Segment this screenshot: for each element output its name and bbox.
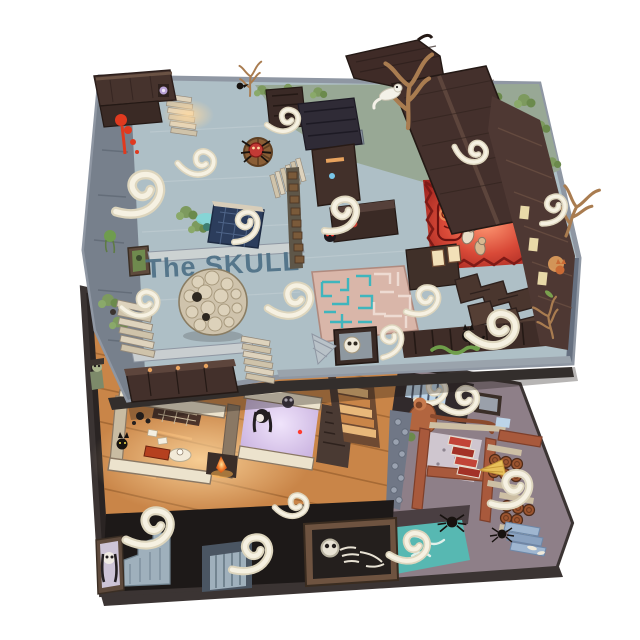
skeleton-niche — [304, 518, 398, 586]
skull-eye-hole — [202, 313, 210, 321]
zombie-maid — [90, 358, 104, 390]
roof-chimney-window — [158, 84, 169, 97]
skull-eye-hole — [192, 292, 202, 302]
game-map-stage: The SKULL — [0, 0, 640, 640]
red-lamp-dot — [298, 430, 302, 434]
skull-in-bed — [334, 327, 378, 365]
skull-mansion-map: The SKULL — [0, 0, 640, 640]
tall-wardrobe — [312, 144, 360, 206]
counter-block — [330, 200, 398, 242]
fireplace — [206, 452, 238, 478]
table-skull — [177, 449, 183, 455]
navy-roof-panel — [298, 98, 362, 150]
ghost-portrait — [96, 536, 124, 594]
desk-with-shoji — [406, 244, 461, 290]
stair-warm-light — [162, 99, 214, 131]
upper-floor: The SKULL — [84, 35, 599, 410]
